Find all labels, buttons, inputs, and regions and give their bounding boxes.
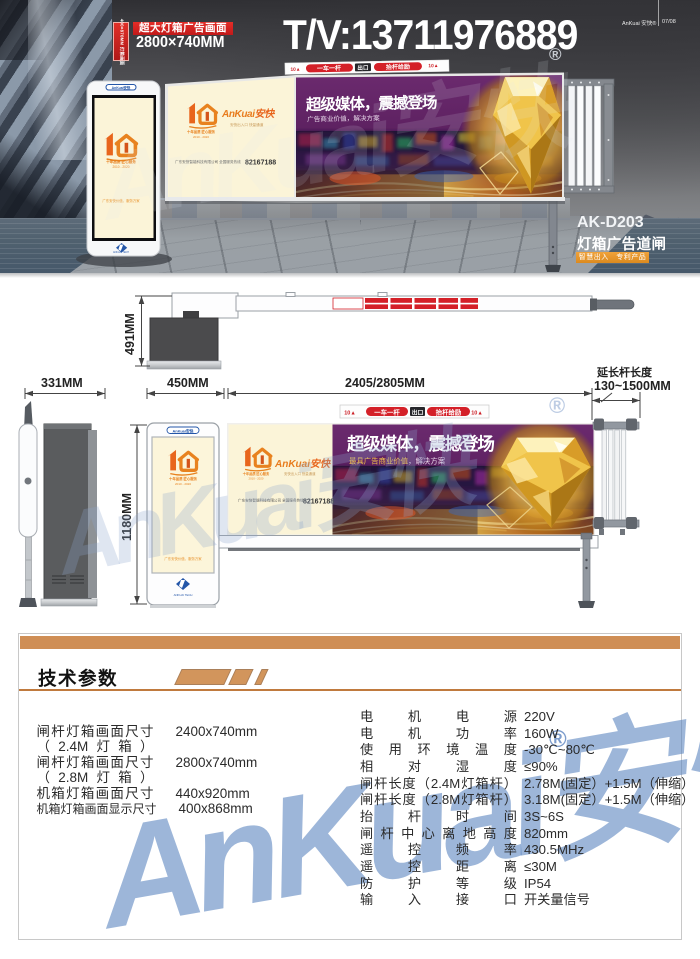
svg-text:491MM: 491MM bbox=[123, 313, 137, 355]
svg-text:ANKUAI TECH: ANKUAI TECH bbox=[174, 593, 193, 597]
svg-text:一车一杆: 一车一杆 bbox=[374, 407, 400, 416]
svg-text:抬杆给励: 抬杆给励 bbox=[436, 407, 462, 416]
svg-text:®: ® bbox=[549, 393, 565, 418]
svg-text:2405/2805MM: 2405/2805MM bbox=[345, 376, 425, 390]
svg-text:450MM: 450MM bbox=[167, 376, 209, 390]
svg-text:AnKuai安快: AnKuai安快 bbox=[173, 428, 194, 433]
svg-text:130~1500MM: 130~1500MM bbox=[594, 379, 671, 393]
svg-text:331MM: 331MM bbox=[41, 376, 83, 390]
svg-text:10▲: 10▲ bbox=[290, 67, 300, 73]
svg-text:10▲: 10▲ bbox=[471, 411, 483, 417]
svg-text:ANKUAI TECH: ANKUAI TECH bbox=[113, 251, 129, 254]
svg-text:出口: 出口 bbox=[412, 408, 424, 416]
svg-text:延长杆长度: 延长杆长度 bbox=[596, 365, 653, 379]
svg-text:AnKuai安快: AnKuai安快 bbox=[112, 85, 131, 90]
svg-text:10▲: 10▲ bbox=[344, 411, 356, 417]
